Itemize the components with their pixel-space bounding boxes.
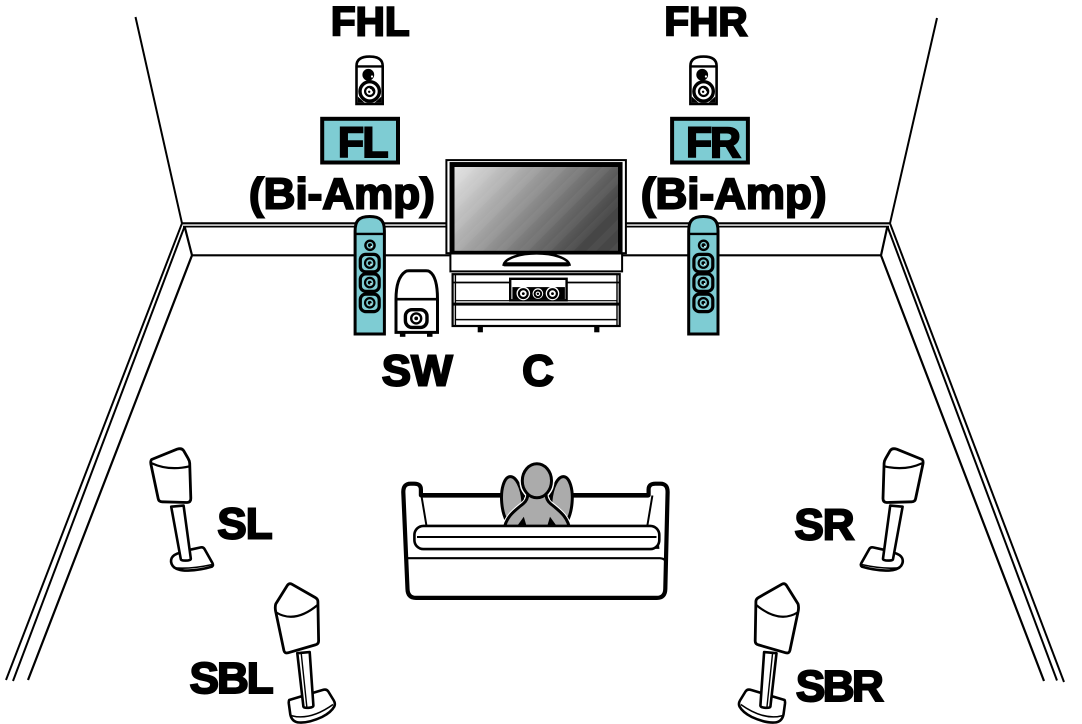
svg-text:FHR: FHR [664, 0, 747, 44]
svg-text:SW: SW [382, 347, 453, 396]
svg-text:SL: SL [217, 500, 271, 549]
svg-text:SBR: SBR [796, 662, 883, 711]
svg-text:(Bi-Amp): (Bi-Amp) [249, 170, 435, 219]
svg-text:SR: SR [794, 501, 853, 550]
svg-text:C: C [522, 347, 554, 396]
svg-text:FR: FR [686, 120, 740, 167]
svg-text:SBL: SBL [190, 654, 273, 703]
svg-text:FL: FL [338, 120, 387, 167]
svg-text:FHL: FHL [331, 0, 410, 44]
svg-text:(Bi-Amp): (Bi-Amp) [641, 170, 827, 219]
